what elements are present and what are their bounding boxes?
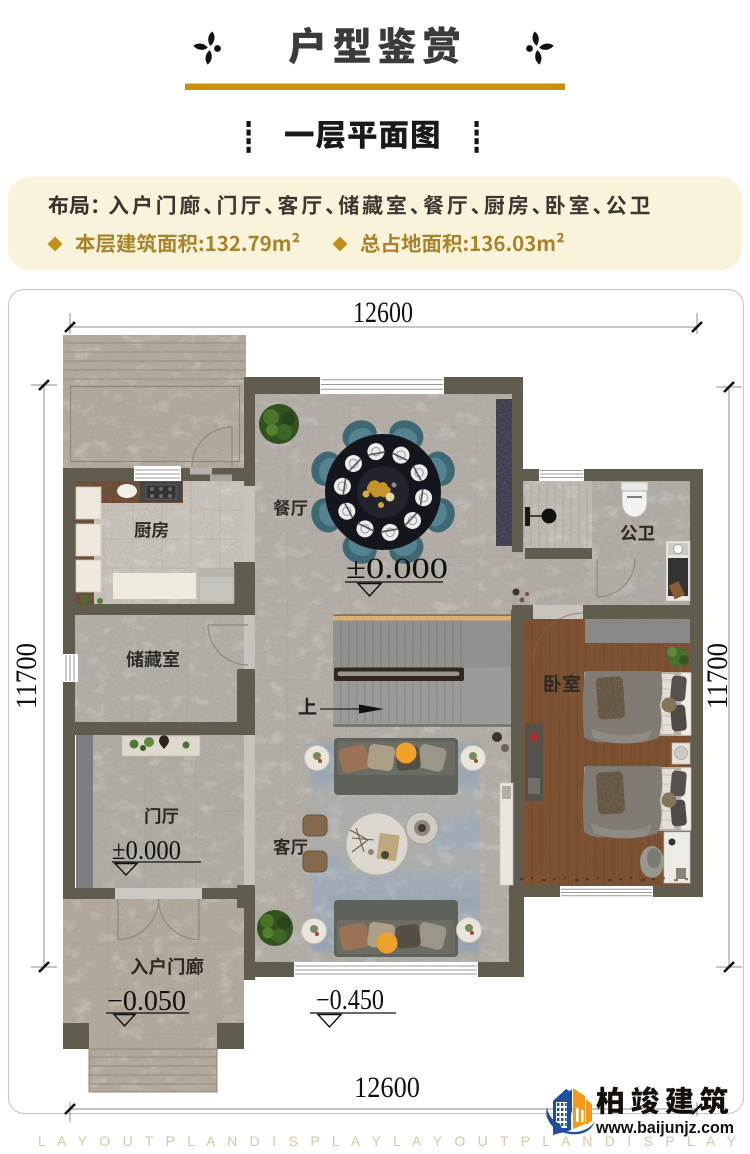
svg-text:−0.050: −0.050 (107, 986, 186, 1017)
svg-text:−0.450: −0.450 (316, 985, 384, 1016)
svg-text:±0.000: ±0.000 (346, 552, 448, 585)
svg-text:www.baijunjz.com: www.baijunjz.com (595, 1119, 734, 1137)
svg-text:±0.000: ±0.000 (112, 835, 181, 865)
svg-text:12600: 12600 (354, 1071, 420, 1104)
svg-text:11700: 11700 (10, 643, 43, 709)
svg-text:12600: 12600 (353, 296, 413, 329)
